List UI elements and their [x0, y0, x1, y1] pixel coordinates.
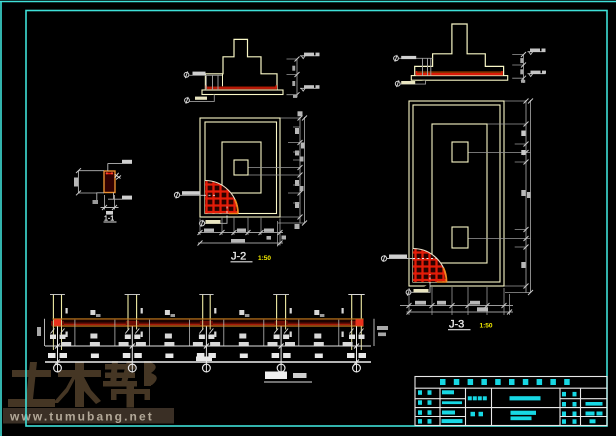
- svg-text:J-3: J-3: [449, 319, 464, 331]
- svg-text:www.tumubang.net: www.tumubang.net: [9, 410, 154, 424]
- svg-text:1:50: 1:50: [258, 255, 271, 262]
- svg-text:1:50: 1:50: [480, 322, 493, 329]
- svg-text:1-1: 1-1: [104, 216, 114, 223]
- svg-text:J-2: J-2: [231, 251, 246, 263]
